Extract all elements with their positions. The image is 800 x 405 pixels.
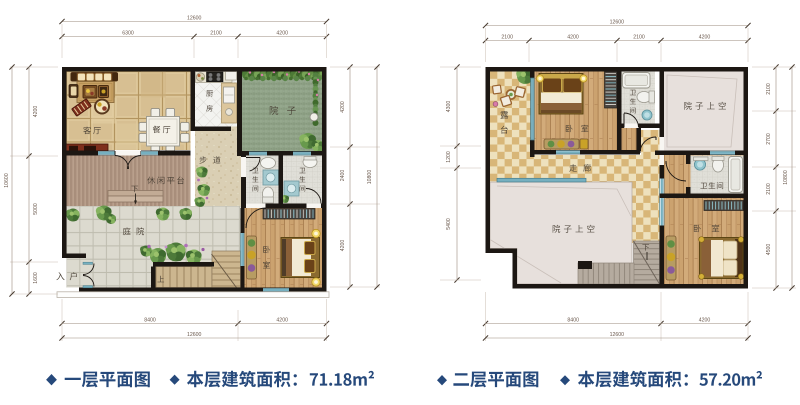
svg-text:4200: 4200: [340, 101, 346, 113]
svg-text:10800: 10800: [783, 170, 789, 185]
svg-text:8400: 8400: [144, 318, 156, 324]
svg-text:10600: 10600: [4, 173, 10, 188]
svg-text:4200: 4200: [699, 35, 711, 41]
svg-text:2100: 2100: [210, 31, 222, 37]
svg-text:12600: 12600: [187, 16, 202, 22]
svg-text:1600: 1600: [33, 272, 39, 284]
svg-text:2100: 2100: [766, 183, 772, 195]
svg-text:4200: 4200: [699, 318, 711, 324]
svg-text:4200: 4200: [276, 31, 288, 37]
svg-text:4500: 4500: [766, 244, 772, 256]
svg-text:8400: 8400: [567, 318, 579, 324]
svg-text:6300: 6300: [122, 31, 134, 37]
svg-text:2100: 2100: [766, 83, 772, 95]
svg-text:4300: 4300: [446, 101, 452, 113]
svg-text:4200: 4200: [567, 35, 579, 41]
svg-text:12600: 12600: [610, 332, 625, 338]
svg-text:10800: 10800: [367, 170, 373, 185]
svg-text:12600: 12600: [187, 332, 202, 338]
svg-text:2100: 2100: [501, 35, 513, 41]
svg-text:4200: 4200: [340, 240, 346, 252]
svg-text:12600: 12600: [610, 20, 625, 26]
svg-text:5000: 5000: [33, 203, 39, 215]
svg-text:2100: 2100: [633, 35, 645, 41]
svg-text:4200: 4200: [33, 106, 39, 118]
svg-text:4200: 4200: [276, 318, 288, 324]
svg-text:1200: 1200: [446, 151, 452, 163]
svg-text:2700: 2700: [766, 133, 772, 145]
svg-text:5400: 5400: [446, 218, 452, 230]
svg-text:2400: 2400: [340, 170, 346, 182]
